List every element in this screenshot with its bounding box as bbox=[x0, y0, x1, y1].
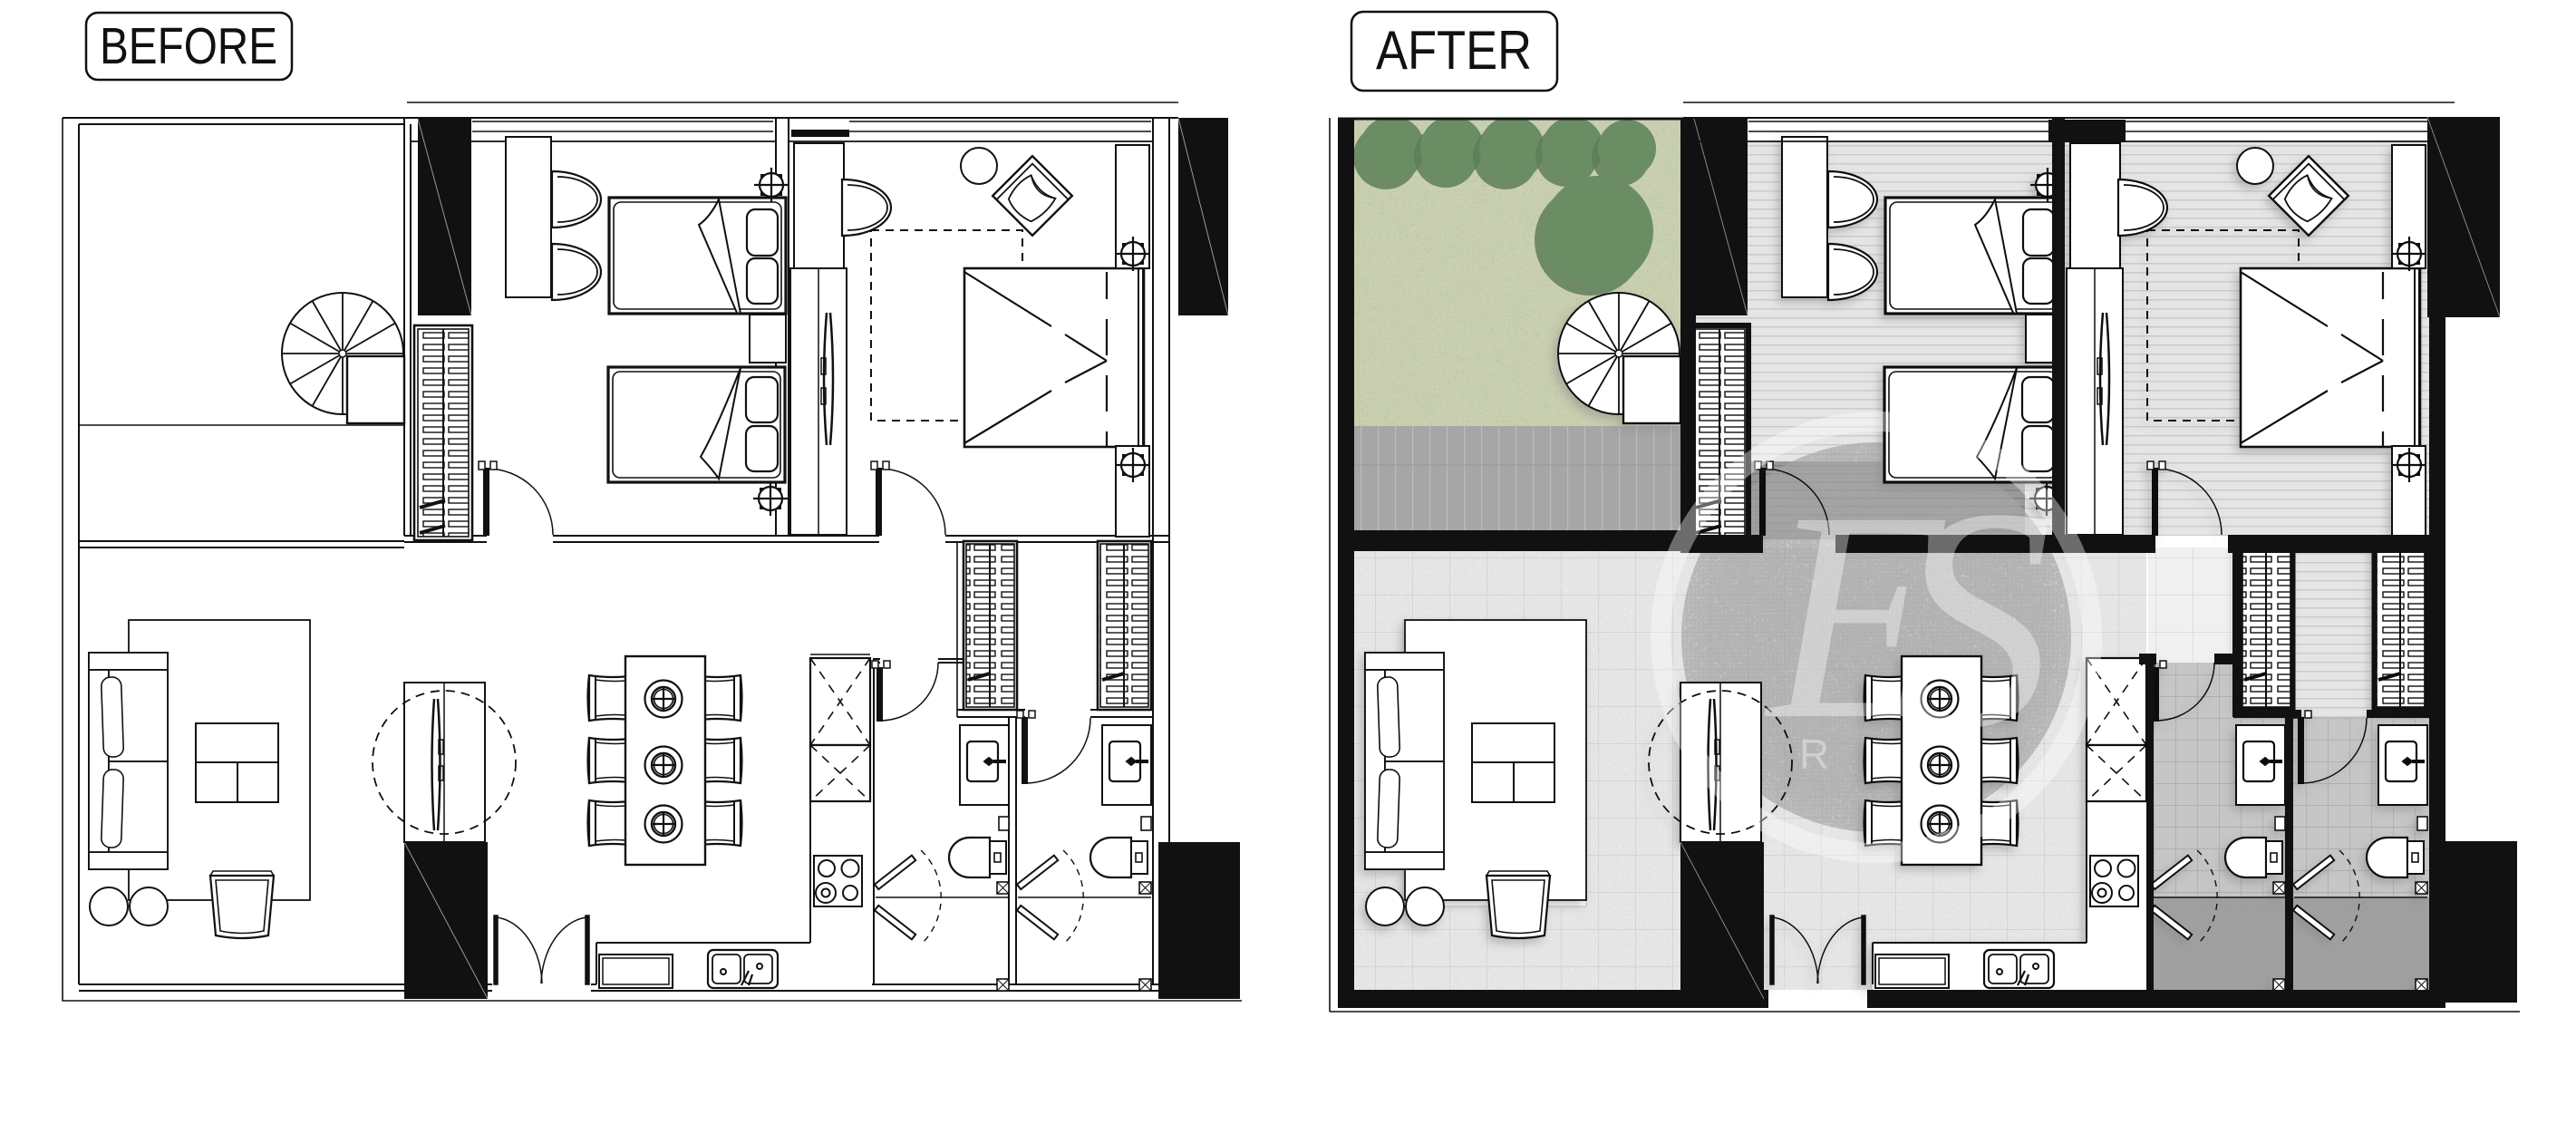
svg-text:AFTER: AFTER bbox=[1376, 20, 1532, 81]
svg-text:S: S bbox=[1894, 442, 2053, 794]
svg-text:R: R bbox=[1799, 731, 1838, 778]
svg-text:BEFORE: BEFORE bbox=[100, 17, 277, 75]
